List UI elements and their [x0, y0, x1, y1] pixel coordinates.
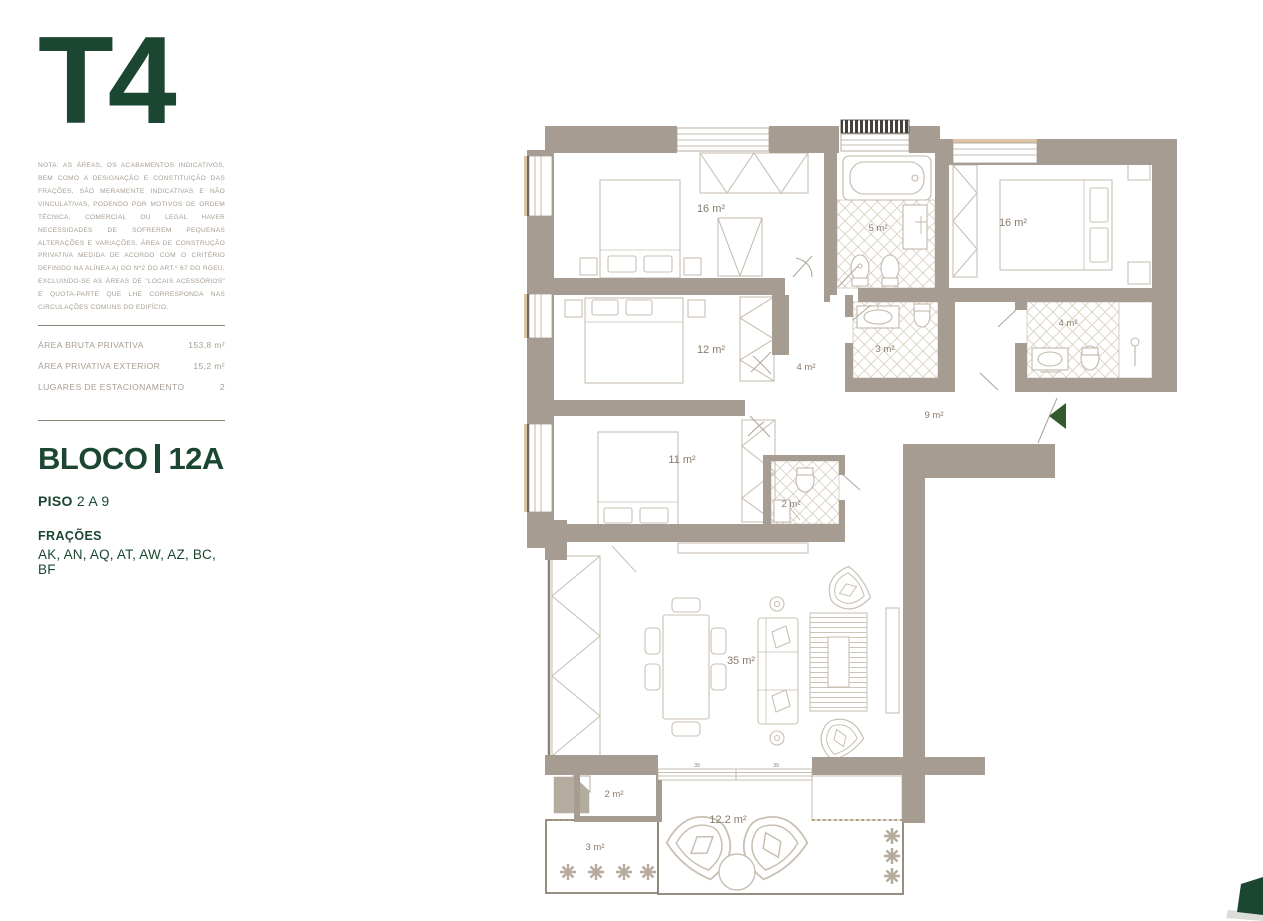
bed-top-left [580, 180, 701, 278]
window-left-1 [524, 156, 552, 216]
sofa [758, 597, 798, 745]
door-bedroom-top-right [980, 373, 998, 390]
window-left-3 [524, 424, 552, 512]
room-label-bedroom-middle: 12 m² [697, 344, 725, 356]
window-top-left [677, 128, 769, 151]
corner-logo [1226, 877, 1263, 921]
room-label-terrace: 12.2 m² [709, 814, 747, 826]
bed-lower [598, 432, 678, 530]
room-label-bedroom-lower: 11 m² [668, 454, 696, 466]
door-bathroom-right [998, 310, 1016, 327]
door-bedroom-middle [751, 352, 771, 374]
room-label-bedroom-top-right: 16 m² [999, 217, 1027, 229]
room-label-bedroom-top-left: 16 m² [697, 203, 725, 215]
sink-top [903, 205, 927, 249]
room-label-balcony: 3 m² [586, 842, 605, 853]
armchair-1 [821, 564, 874, 618]
door-bathroom-small [842, 474, 860, 490]
room-label-corridor: 9 m² [925, 410, 944, 421]
brochure-page: T4 NOTA: AS ÁREAS, OS ACABAMENTOS INDICA… [0, 0, 1263, 921]
rug-coffee-table [810, 613, 867, 711]
dining-table-set [645, 598, 726, 736]
door-bedroom-top-left [793, 256, 812, 277]
room-label-living: 35 m² [727, 655, 755, 667]
room-label-bathroom-top: 5 m² [869, 223, 888, 234]
bathtub [843, 156, 931, 200]
bath-middle-fixtures [857, 302, 930, 328]
window-top-right [953, 139, 1037, 163]
room-label-hall: 4 m² [797, 362, 816, 373]
washing-machine [553, 776, 590, 814]
door-width-mark: 39 [773, 763, 779, 769]
bed-middle [565, 298, 705, 383]
tv-sideboard [886, 608, 899, 713]
wardrobe-middle [740, 297, 774, 381]
terrace-table [719, 854, 755, 890]
wardrobe-top-right [953, 165, 977, 277]
window-bath-vent [841, 120, 909, 151]
room-label-bathroom-right: 4 m² [1059, 318, 1078, 329]
sliding-door-living: 39 39 [658, 763, 812, 780]
kitchen-cabinets [549, 546, 636, 757]
room-label-bathroom-small: 2 m² [782, 499, 801, 510]
door-width-mark: 39 [694, 763, 700, 769]
entrance-arrow-icon [1049, 403, 1066, 429]
sideboard [678, 543, 808, 553]
armchair-2 [812, 711, 866, 764]
room-label-laundry: 2 m² [605, 789, 624, 800]
door-entrance [1038, 398, 1057, 443]
floor-plan: 39 39 [0, 0, 1263, 921]
room-label-bathroom-middle: 3 m² [876, 344, 895, 355]
window-left-2 [524, 294, 552, 338]
